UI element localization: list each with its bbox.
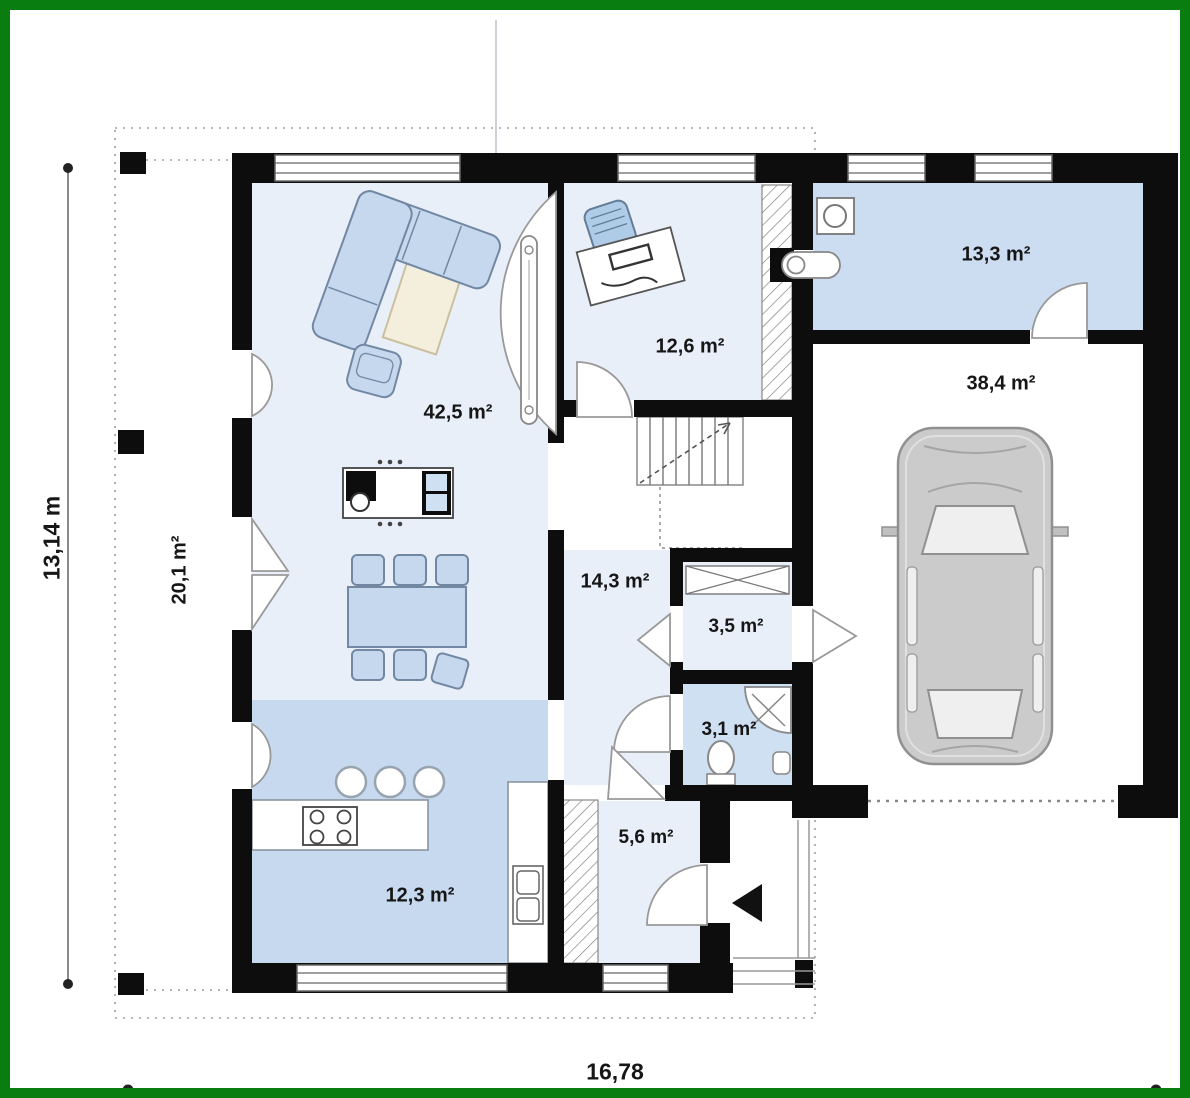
water-heater-icon — [770, 248, 840, 282]
window-icon — [975, 155, 1052, 181]
wardrobe-icon — [762, 185, 792, 400]
sink-icon — [513, 866, 543, 924]
bar-stool-icon — [336, 767, 366, 797]
room-label-living: 42,5 m² — [424, 402, 493, 425]
room-label-kitchen: 12,3 m² — [386, 885, 455, 908]
width-dimension-label: 16,78 — [586, 1059, 644, 1086]
closet-cabinet-icon — [686, 566, 789, 594]
room-label-closet: 3,5 m² — [709, 616, 764, 638]
window-icon — [275, 155, 460, 181]
room-label-hall: 14,3 m² — [581, 571, 650, 594]
media-unit-icon — [343, 460, 453, 527]
terrace-post — [120, 152, 146, 174]
floor-plan-frame: 42,5 m² 12,6 m² 13,3 m² 38,4 m² 14,3 m² … — [0, 0, 1190, 1098]
window-icon — [297, 965, 507, 991]
entrance-arrow-icon — [732, 884, 762, 922]
bar-stool-icon — [414, 767, 444, 797]
toilet-icon — [707, 741, 735, 785]
window-icon — [603, 965, 668, 991]
window-icon — [848, 155, 925, 181]
room-label-terrace: 20,1 m² — [169, 536, 192, 605]
car-icon — [882, 428, 1068, 764]
dining-table-icon — [348, 555, 470, 690]
window-icon — [618, 155, 755, 181]
wardrobe-icon — [560, 800, 598, 963]
room-label-utility: 13,3 m² — [962, 244, 1031, 267]
terrace-post — [118, 973, 144, 995]
washbasin-icon — [773, 752, 790, 774]
room-label-entrance: 5,6 m² — [619, 827, 674, 849]
washing-machine-icon — [817, 198, 854, 234]
stove-icon — [303, 807, 357, 845]
height-dimension-label: 13,14 m — [39, 496, 66, 580]
room-label-office: 12,6 m² — [656, 336, 725, 359]
room-label-garage: 38,4 m² — [967, 373, 1036, 396]
bar-stool-icon — [375, 767, 405, 797]
room-label-bathroom: 3,1 m² — [702, 719, 757, 741]
utility-fixtures — [817, 198, 854, 234]
terrace-post — [118, 430, 144, 454]
